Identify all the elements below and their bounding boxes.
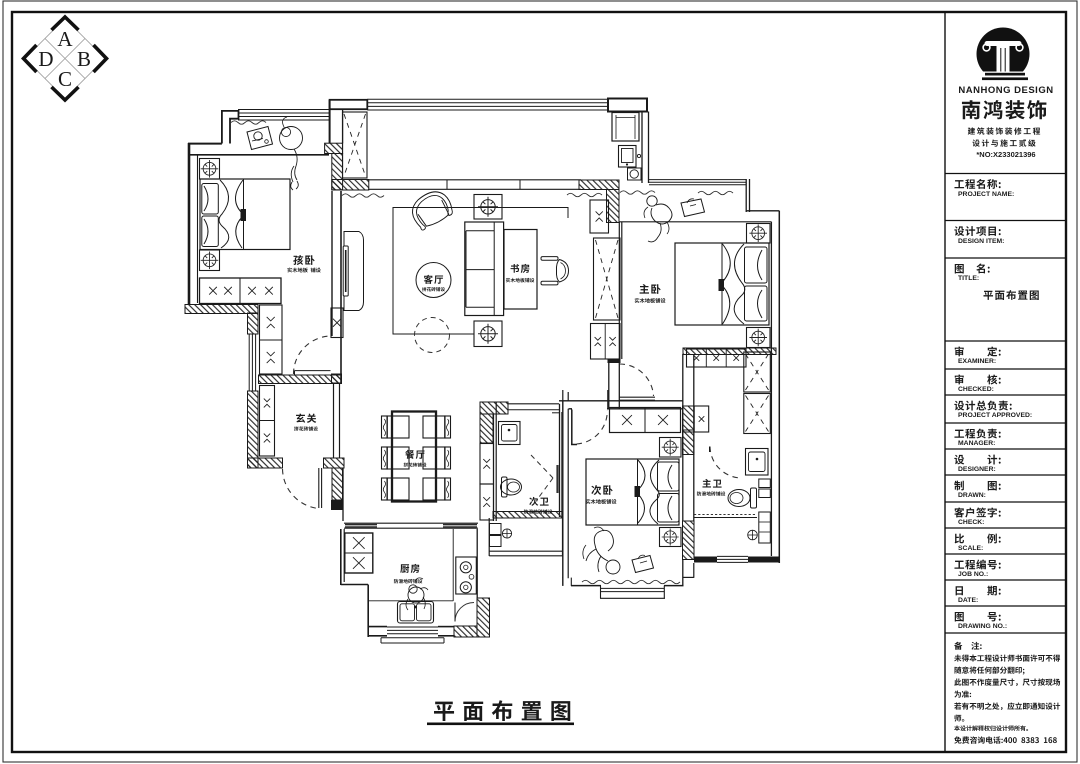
svg-text:C: C xyxy=(58,67,72,91)
svg-text:D: D xyxy=(38,47,53,71)
svg-text:B: B xyxy=(77,47,91,71)
svg-text:A: A xyxy=(57,27,73,51)
